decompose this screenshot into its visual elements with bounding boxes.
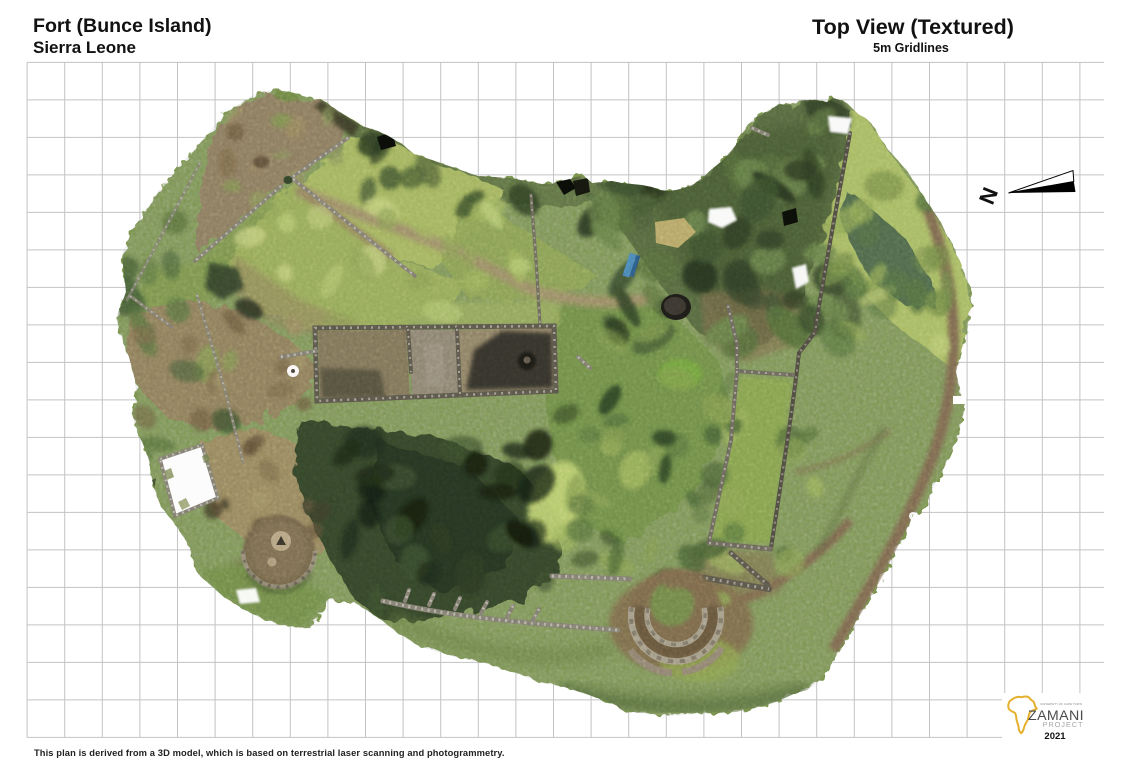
svg-text:UNIVERSITY OF CAPE TOWN: UNIVERSITY OF CAPE TOWN [1040,702,1082,706]
svg-text:PROJECT: PROJECT [1043,720,1084,729]
svg-text:2021: 2021 [1044,731,1066,742]
svg-text:Sierra Leone: Sierra Leone [33,38,136,57]
svg-text:Fort (Bunce Island): Fort (Bunce Island) [33,15,212,37]
svg-text:Top View (Textured): Top View (Textured) [812,15,1014,39]
svg-text:5m Gridlines: 5m Gridlines [873,41,949,55]
svg-text:This plan is derived from a 3D: This plan is derived from a 3D model, wh… [34,748,505,758]
